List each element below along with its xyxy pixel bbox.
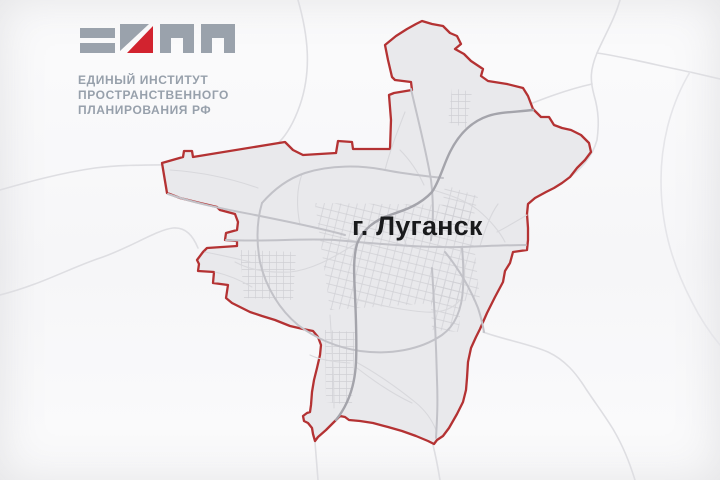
logo-glyph-p1 xyxy=(160,24,194,53)
exterior-road-east-branch xyxy=(597,53,720,79)
eipp-logo-mark xyxy=(78,22,238,56)
image-canvas: ЕДИНЫЙ ИНСТИТУТ ПРОСТРАНСТВЕННОГО ПЛАНИР… xyxy=(0,0,720,480)
logo-text-line: ПЛАНИРОВАНИЯ РФ xyxy=(78,103,266,118)
logo-glyph-i xyxy=(120,24,153,53)
exterior-road-south-2 xyxy=(433,445,440,480)
logo-text-line: ПРОСТРАНСТВЕННОГО xyxy=(78,88,266,103)
exterior-road-southwest xyxy=(0,228,198,295)
exterior-road-southeast xyxy=(483,332,635,480)
logo-text-line: ЕДИНЫЙ ИНСТИТУТ xyxy=(78,73,266,88)
logo-glyph-e xyxy=(80,28,115,53)
eipp-logo-text: ЕДИНЫЙ ИНСТИТУТ ПРОСТРАНСТВЕННОГО ПЛАНИР… xyxy=(78,73,266,118)
street-grid-west xyxy=(240,250,296,300)
city-label: г. Луганск xyxy=(352,211,483,242)
exterior-road-south-1 xyxy=(315,442,318,480)
logo-glyph-p2 xyxy=(201,24,235,53)
exterior-road-far-east xyxy=(661,72,720,345)
eipp-logo: ЕДИНЫЙ ИНСТИТУТ ПРОСТРАНСТВЕННОГО ПЛАНИР… xyxy=(76,22,266,118)
